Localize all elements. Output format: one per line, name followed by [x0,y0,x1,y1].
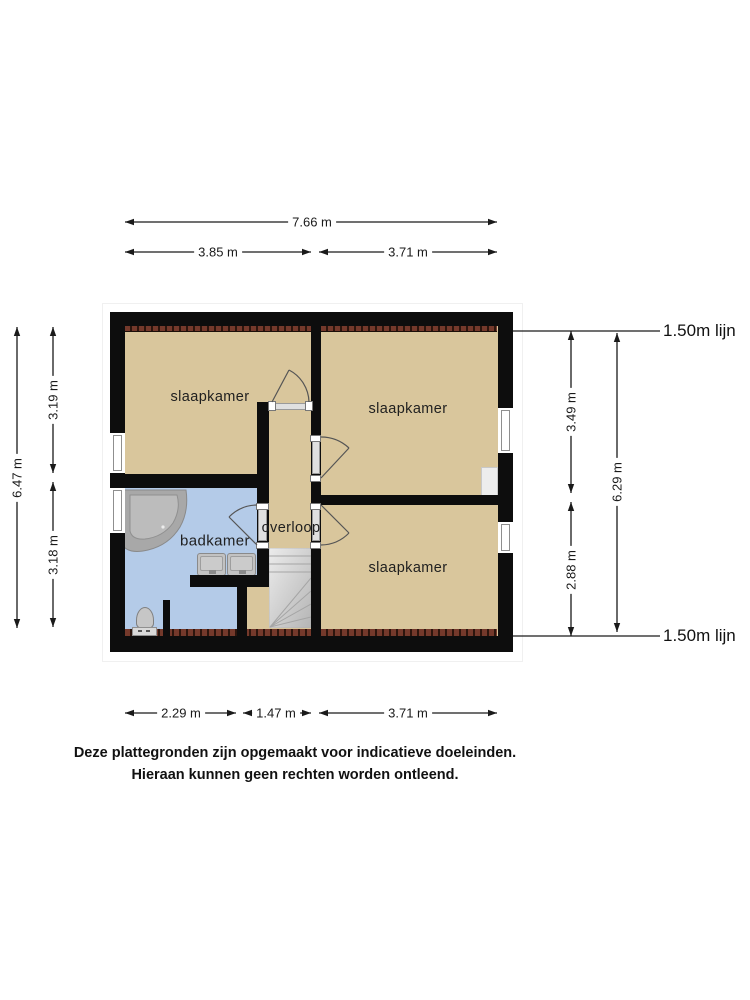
dim-height-right-top: 3.49 m [564,388,579,436]
dim-bottom-left: 2.29 m [157,706,205,721]
wall-toilet-stub [163,600,170,636]
toilet-bowl [136,607,154,629]
door-jamb [310,435,321,442]
room-label-landing: overloop [262,520,321,536]
room-label-bathroom: badkamer [180,533,250,550]
toilet-base [132,627,157,636]
wall-bathroom-stair [237,587,247,636]
door-jamb [256,542,269,549]
staircase [269,548,311,628]
window-left-bottom [110,488,125,533]
sink-basin [230,556,253,571]
attic-line-label-bottom: 1.50m lijn [663,626,736,646]
floorplan-page: slaapkamer slaapkamer slaapkamer badkame… [0,0,750,1000]
dim-height-total-left: 6.47 m [10,454,25,502]
toilet-mark [146,630,150,632]
faucet-icon [209,570,216,574]
dim-width-left: 3.85 m [194,245,242,260]
window-frame [501,524,510,551]
dim-height-left-bottom: 3.18 m [46,531,61,579]
door-sill-bedroom-topright [312,441,320,474]
dim-width-right: 3.71 m [384,245,432,260]
room-label-bedroom-bottom-right: slaapkamer [369,560,448,576]
faucet-icon [239,570,246,574]
duct-shaft [481,467,498,496]
window-right-top [498,408,513,453]
attic-line-label-top: 1.50m lijn [663,321,736,341]
dim-width-total: 7.66 m [288,215,336,230]
wall-landing-left [257,402,269,587]
room-label-bedroom-top-right: slaapkamer [369,401,448,417]
door-jamb [310,503,321,510]
door-jamb [256,503,269,510]
wall-outer-right [498,312,513,652]
dim-height-total-right: 6.29 m [610,458,625,506]
door-jamb [268,401,276,411]
window-frame [501,410,510,451]
wall-outer-top [110,312,513,326]
dim-height-right-bottom: 2.88 m [564,546,579,594]
door-jamb [310,542,321,549]
window-frame [113,435,122,471]
wall-bedroom-divider-right [321,495,498,505]
wall-bathroom-top [110,474,257,488]
disclaimer-line-1: Deze plattegronden zijn opgemaakt voor i… [20,742,570,764]
window-frame [113,490,122,531]
bathtub-drain [161,525,164,528]
door-sill-landing-top [275,403,306,410]
window-left-top [110,433,125,473]
sink-right [227,553,256,576]
wall-sink-counter [190,575,269,587]
window-right-bottom [498,522,513,553]
sink-left [197,553,226,576]
dim-bottom-right: 3.71 m [384,706,432,721]
toilet-mark [138,630,142,632]
sink-basin [200,556,223,571]
dim-height-left-top: 3.19 m [46,376,61,424]
disclaimer-line-2: Hieraan kunnen geen rechten worden ontle… [20,764,570,786]
door-jamb [310,475,321,482]
room-label-bedroom-top-left: slaapkamer [171,389,250,405]
door-jamb [305,401,313,411]
wall-outer-bottom [110,636,513,652]
dim-bottom-middle: 1.47 m [252,706,300,721]
